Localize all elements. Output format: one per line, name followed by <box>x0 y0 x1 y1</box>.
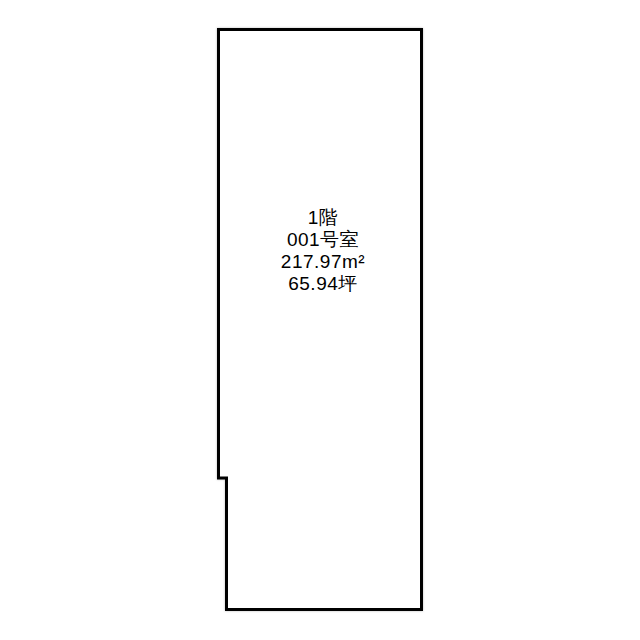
floorplan-drawing <box>0 0 640 640</box>
unit-info-label: 1階 001号室 217.97m² 65.94坪 <box>221 207 425 295</box>
unit-outline <box>219 30 422 610</box>
area-tsubo-label: 65.94坪 <box>221 273 425 295</box>
room-number-label: 001号室 <box>221 229 425 251</box>
area-sqm-label: 217.97m² <box>221 251 425 273</box>
floorplan-canvas: 1階 001号室 217.97m² 65.94坪 <box>0 0 640 640</box>
floor-label: 1階 <box>221 207 425 229</box>
